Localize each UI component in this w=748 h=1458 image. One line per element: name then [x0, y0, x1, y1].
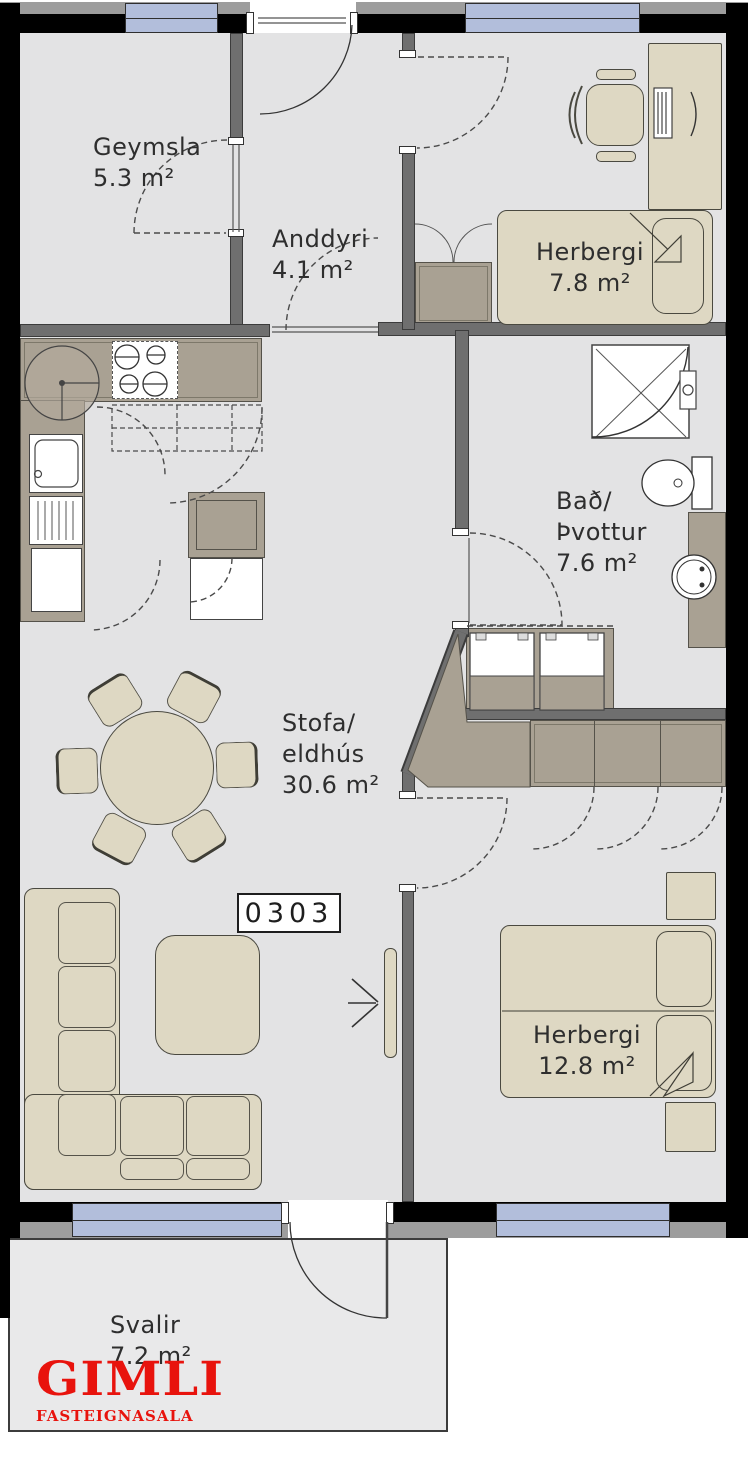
sofa-cushion — [186, 1096, 250, 1156]
unit-number-box: 0303 — [237, 893, 341, 933]
room-label-bad-thvottur: Bað/ Þvottur 7.6 m² — [556, 486, 647, 579]
window-mullion — [497, 1220, 669, 1221]
dining-chair — [215, 741, 259, 788]
balcony-door-opening — [288, 1200, 388, 1238]
window-mullion — [126, 18, 217, 19]
radiator-door-leaf — [384, 948, 397, 1058]
door-jamb — [399, 146, 416, 154]
window-top-right — [465, 3, 640, 33]
coffee-table — [155, 935, 260, 1055]
wall-anddyri-herbergi-lower — [402, 150, 415, 330]
dishwasher — [31, 548, 82, 612]
logo-subtitle: FASTEIGNASALA — [36, 1407, 210, 1425]
room-label-stofa-eldhus: Stofa/ eldhús 30.6 m² — [282, 708, 380, 801]
dining-chair — [55, 747, 99, 794]
unit-number: 0303 — [245, 898, 334, 929]
wall-geymsla-anddyri-lower — [230, 232, 243, 330]
wardrobe-row-inner — [534, 724, 722, 783]
room-name: Bað/ — [556, 486, 647, 517]
stove — [112, 341, 178, 399]
nightstand — [666, 872, 716, 920]
room-name: Herbergi — [495, 237, 685, 268]
door-jamb — [399, 791, 416, 799]
nightstand — [665, 1102, 716, 1152]
window-bottom-left — [72, 1203, 282, 1237]
window-mullion — [73, 1220, 281, 1221]
office-chair-arm — [596, 151, 636, 162]
window-mullion — [466, 18, 639, 19]
room-name: Herbergi — [492, 1020, 682, 1051]
door-jamb — [350, 12, 358, 34]
kitchen-sink-unit — [29, 434, 83, 493]
freezer-inner — [196, 500, 257, 550]
wardrobe-divider — [660, 720, 661, 787]
gimli-logo: GIMLI FASTEIGNASALA — [36, 1355, 210, 1425]
wall-geymsla-anddyri-upper — [230, 33, 243, 145]
right-wall — [726, 3, 748, 1238]
sofa-cushion — [58, 1030, 116, 1092]
door-jamb — [452, 621, 469, 629]
door-jamb — [281, 1202, 289, 1224]
sofa-cushion — [58, 966, 116, 1028]
room-name: eldhús — [282, 739, 380, 770]
door-jamb — [228, 229, 244, 237]
fridge-bottom — [190, 558, 263, 620]
room-label-anddyri: Anddyri 4.1 m² — [272, 224, 368, 286]
dish-drainer — [29, 496, 83, 545]
room-label-herbergi-small: Herbergi 7.8 m² — [495, 237, 685, 299]
room-name: Svalir — [110, 1310, 192, 1341]
room-name: Geymsla — [93, 132, 201, 163]
room-area: 7.8 m² — [495, 268, 685, 299]
wall-bath-west — [455, 330, 469, 535]
wall-bath-south — [461, 708, 726, 720]
pillow — [656, 931, 712, 1007]
door-jamb — [399, 884, 416, 892]
window-bottom-right — [496, 1203, 670, 1237]
dining-table — [100, 711, 214, 825]
room-area: 7.6 m² — [556, 548, 647, 579]
room-area: 4.1 m² — [272, 255, 368, 286]
office-chair-arm — [596, 69, 636, 80]
sofa-cushion — [58, 1094, 116, 1156]
sofa-cushion — [120, 1096, 184, 1156]
room-name: Þvottur — [556, 517, 647, 548]
room-area: 30.6 m² — [282, 770, 380, 801]
door-jamb — [228, 137, 244, 145]
sofa-cushion — [58, 902, 116, 964]
wardrobe-small-inner — [419, 266, 488, 321]
sofa-back-cushion — [120, 1158, 184, 1180]
door-jamb — [386, 1202, 394, 1224]
laundry-counter — [466, 628, 614, 716]
office-chair-seat — [586, 84, 644, 146]
room-area: 12.8 m² — [492, 1051, 682, 1082]
desk — [648, 43, 722, 210]
floor-plan: Geymsla 5.3 m² Anddyri 4.1 m² Herbergi 7… — [0, 0, 748, 1458]
wardrobe-divider — [594, 720, 595, 787]
wall-kitchen-top — [20, 324, 270, 337]
door-jamb — [246, 12, 254, 34]
left-wall — [0, 3, 20, 1238]
bath-vanity — [688, 512, 726, 648]
room-label-geymsla: Geymsla 5.3 m² — [93, 132, 201, 194]
wall-bedroom-west-lower — [402, 888, 414, 1202]
entry-door-opening — [250, 0, 356, 33]
door-jamb — [399, 50, 416, 58]
sofa-back-cushion — [186, 1158, 250, 1180]
logo-title: GIMLI — [36, 1355, 224, 1405]
room-name: Stofa/ — [282, 708, 380, 739]
room-name: Anddyri — [272, 224, 368, 255]
door-jamb — [452, 528, 469, 536]
room-label-herbergi-large: Herbergi 12.8 m² — [492, 1020, 682, 1082]
room-area: 5.3 m² — [93, 163, 201, 194]
left-wall-balcony-stub — [0, 1238, 10, 1318]
window-top-left — [125, 3, 218, 33]
